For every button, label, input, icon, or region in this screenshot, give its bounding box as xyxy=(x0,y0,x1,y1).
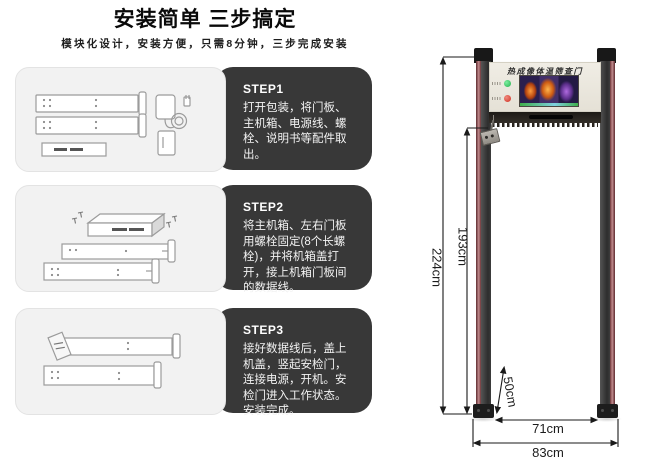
step2-illustration-card xyxy=(15,185,226,292)
security-door-figure: 热成像体温筛查门 xyxy=(420,30,649,467)
step3-row: STEP3 接好数据线后，盖上机盖，竖起安检门，连接电源，开机。安检门进入工作状… xyxy=(0,308,410,413)
unpacking-parts-illustration xyxy=(16,69,225,170)
step2-body: 将主机箱、左右门板用螺栓固定(8个长螺栓)，并将机箱盖打开，接上机箱门板间的数据… xyxy=(243,219,355,297)
step1-label: STEP1 xyxy=(243,82,361,96)
step2-panel: STEP2 将主机箱、左右门板用螺栓固定(8个长螺栓)，并将机箱盖打开，接上机箱… xyxy=(215,185,372,290)
inner-height-dimension: 193cm xyxy=(456,222,471,272)
step1-panel: STEP1 打开包装，将门板、主机箱、电源线、螺栓、说明书等配件取出。 xyxy=(215,67,372,170)
step3-panel: STEP3 接好数据线后，盖上机盖，竖起安检门，连接电源，开机。安检门进入工作状… xyxy=(215,308,372,413)
infographic-page: 安装简单 三步搞定 模块化设计，安装方便，只需8分钟，三步完成安装 STEP1 … xyxy=(0,0,649,467)
step2-row: STEP2 将主机箱、左右门板用螺栓固定(8个长螺栓)，并将机箱盖打开，接上机箱… xyxy=(0,185,410,290)
final-assembly-illustration xyxy=(16,310,225,413)
inner-width-dimension: 71cm xyxy=(513,421,583,436)
step1-row: STEP1 打开包装，将门板、主机箱、电源线、螺栓、说明书等配件取出。 xyxy=(0,67,410,170)
page-subtitle: 模块化设计，安装方便，只需8分钟，三步完成安装 xyxy=(0,36,410,51)
step1-body: 打开包装，将门板、主机箱、电源线、螺栓、说明书等配件取出。 xyxy=(243,101,355,163)
dimension-lines xyxy=(420,30,649,467)
step3-illustration-card xyxy=(15,308,226,415)
total-height-dimension: 224cm xyxy=(430,243,445,293)
step3-label: STEP3 xyxy=(243,323,361,337)
bolt-assembly-illustration xyxy=(16,187,225,290)
page-title: 安装简单 三步搞定 xyxy=(0,3,410,33)
step1-illustration-card xyxy=(15,67,226,172)
step3-body: 接好数据线后，盖上机盖，竖起安检门，连接电源，开机。安检门进入工作状态。安装完成… xyxy=(243,342,355,420)
outer-width-dimension: 83cm xyxy=(513,445,583,460)
step2-label: STEP2 xyxy=(243,200,361,214)
